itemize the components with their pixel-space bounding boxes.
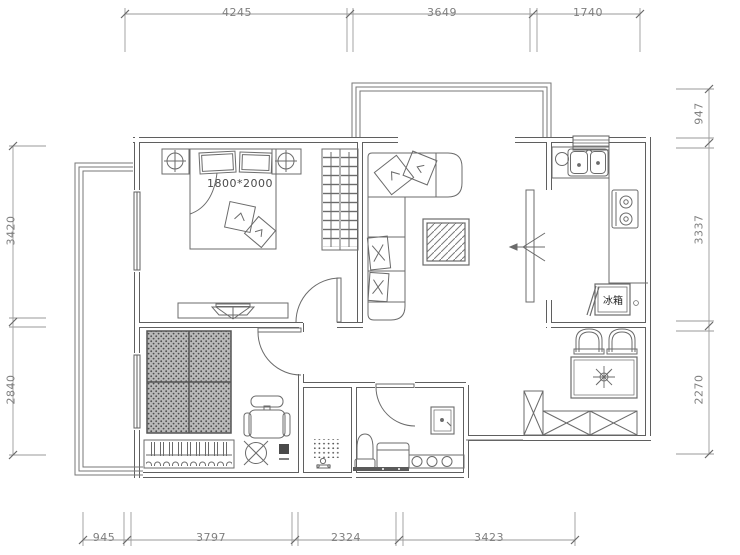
desk-chair	[244, 396, 290, 438]
table-centerpiece	[593, 366, 615, 388]
bed-size-label: 1800*2000	[207, 177, 273, 190]
dim-label-bottom-3: 2324	[316, 531, 376, 544]
sofa-pillow-2	[403, 151, 437, 185]
washing-machine	[377, 443, 409, 471]
window-band-left-balcony	[75, 163, 143, 475]
dim-label-left-1: 3420	[5, 201, 18, 261]
dim-label-left-2: 2840	[5, 360, 18, 420]
dim-label-bottom-4: 3423	[459, 531, 519, 544]
dining-chair-right	[607, 329, 637, 354]
dim-label-right-3: 2270	[693, 360, 706, 420]
window-left-upper	[134, 192, 140, 270]
gas-stove	[612, 190, 638, 228]
fridge-door-swing	[587, 286, 599, 316]
door-bedroom2	[258, 328, 301, 375]
coffee-table	[423, 219, 469, 265]
shower-mixer	[317, 458, 330, 468]
shoe-cabinet-vertical	[524, 391, 543, 435]
fan-symbol	[244, 441, 268, 465]
floor-drain	[314, 439, 339, 458]
sofa-pillow-1	[374, 155, 413, 194]
radiator	[144, 440, 234, 468]
window-left-lower	[134, 355, 140, 428]
power-box	[279, 444, 289, 459]
sofa-pillow-4	[368, 272, 389, 301]
lamp-symbol-left	[164, 150, 186, 172]
window-band-top-balcony	[352, 83, 551, 137]
dim-label-right-1: 947	[693, 84, 706, 144]
wall-sink	[431, 407, 454, 434]
dining-chair-left	[574, 329, 604, 354]
shoe-cabinet-horizontal	[543, 411, 637, 435]
dim-label-top-1: 4245	[207, 6, 267, 19]
kitchen-window	[573, 136, 609, 150]
door-bedroom1	[296, 278, 341, 322]
dim-label-top-2: 3649	[412, 6, 472, 19]
bed-tatami	[147, 331, 231, 433]
kitchen-counter	[552, 147, 648, 283]
floor-plan-drawing	[0, 0, 740, 555]
bed-pillow-left	[199, 151, 236, 174]
bed-cushion-1	[225, 202, 256, 233]
dim-label-top-3: 1740	[558, 6, 618, 19]
floor-plan-canvas: 4245 3649 1740 945 3797 2324 3423 3420 2…	[0, 0, 740, 555]
bed-double	[190, 149, 276, 249]
fridge-label: 冰箱	[600, 292, 626, 307]
sofa-pillow-3	[367, 236, 390, 270]
sliding-door	[526, 190, 534, 302]
tv-cabinet	[178, 303, 288, 319]
kitchen-sink	[568, 149, 608, 176]
bathroom-door	[376, 384, 415, 426]
lamp-symbol-right	[275, 150, 297, 172]
vanity-counter	[409, 455, 464, 468]
wardrobe	[322, 149, 358, 250]
dim-label-right-2: 3337	[693, 200, 706, 260]
bed-pillow-right	[239, 152, 272, 173]
dim-label-bottom-2: 3797	[181, 531, 241, 544]
dim-label-bottom-1: 945	[74, 531, 134, 544]
